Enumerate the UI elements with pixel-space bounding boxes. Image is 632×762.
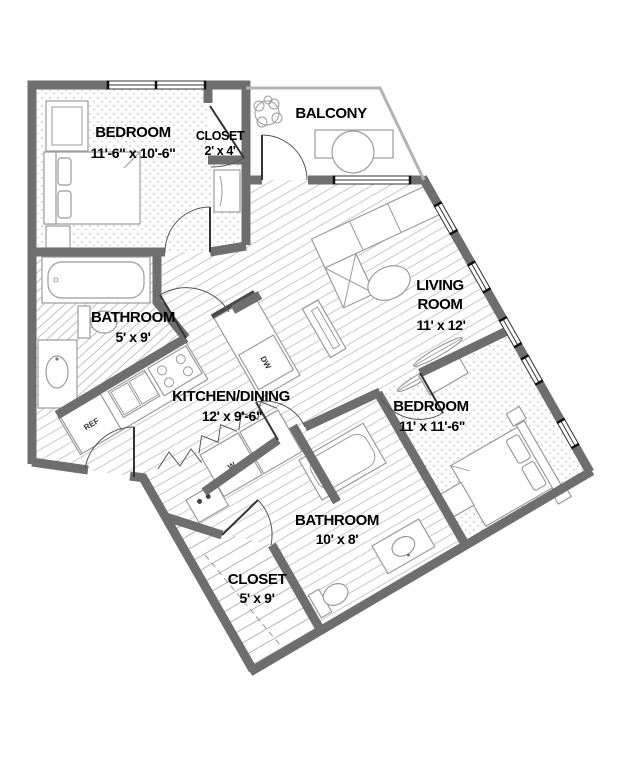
window: [108, 81, 205, 90]
balcony-table: [332, 131, 374, 173]
wall-bedroom1-bottom: [210, 246, 246, 252]
floor-plan: REF DW: [0, 0, 632, 762]
closet-2-dims: 5' x 9': [240, 590, 275, 606]
balcony-label: BALCONY: [295, 105, 367, 122]
bathroom-2-label: BATHROOM: [295, 512, 379, 529]
tv-stand-1: [214, 170, 240, 212]
bedroom-1-label: BEDROOM: [95, 124, 171, 141]
living-room-label2: ROOM: [417, 296, 462, 313]
bathroom-2-dims: 10' x 8': [316, 531, 358, 547]
bathroom-1-label: BATHROOM: [91, 309, 175, 326]
faucet-1: [55, 357, 58, 360]
sink-1: [46, 356, 68, 388]
kitchen-dims: 12' x 9'-6": [202, 408, 262, 424]
bed-1-headboard: [44, 152, 56, 224]
window: [334, 176, 410, 185]
kitchen-label: KITCHEN/DINING: [172, 388, 290, 405]
bedroom-2-dims: 11' x 11'-6": [399, 418, 465, 434]
floor-plan-drawing: REF DW: [0, 0, 632, 762]
bed-1-pillow: [58, 158, 71, 185]
bedroom-2-label: BEDROOM: [393, 398, 469, 415]
bed-1-pillow: [58, 191, 71, 218]
living-room-label: LIVING: [416, 277, 464, 294]
living-room-dims: 11' x 12': [417, 317, 466, 333]
bedroom-1-dims: 11'-6" x 10'-6": [91, 145, 176, 161]
bathtub-1-basin: [48, 262, 144, 298]
closet-1-dims: 2' x 4': [205, 144, 236, 158]
toilet-1-tank: [78, 306, 90, 338]
bathroom-1-dims: 5' x 9': [116, 329, 151, 345]
closet-1-label: CLOSET: [196, 129, 245, 143]
nightstand-1: [46, 226, 70, 248]
closet-2-label: CLOSET: [228, 571, 287, 588]
